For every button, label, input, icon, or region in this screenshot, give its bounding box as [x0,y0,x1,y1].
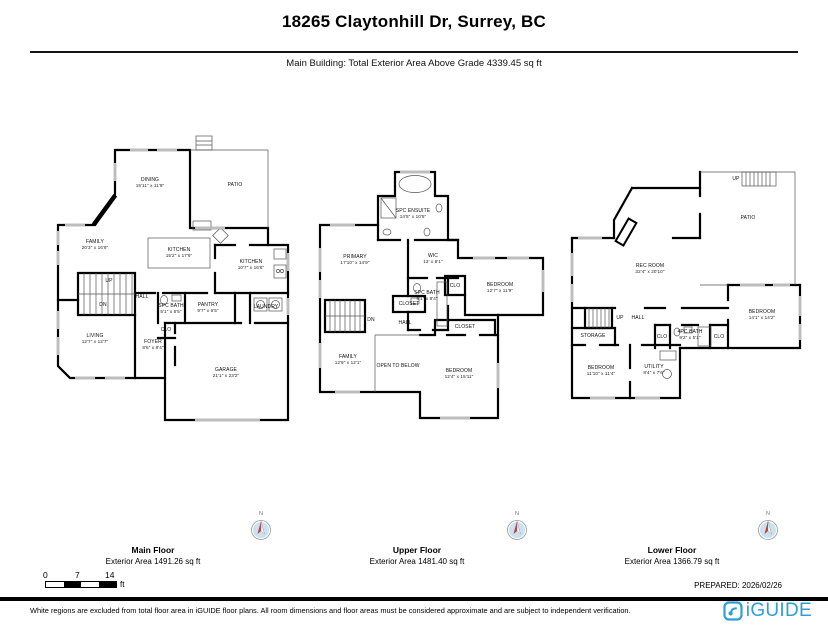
room-label-hall: HALL [136,294,149,300]
upper-floor-caption: Upper Floor Exterior Area 1481.40 sq ft [317,545,517,566]
page-title: 18265 Claytonhill Dr, Surrey, BC [0,12,828,32]
footer-disclaimer: White regions are excluded from total fl… [30,606,631,615]
lower-floor-walls [570,168,802,420]
room-label-up: UP [105,278,112,284]
room-label-closet: CLOSET [399,301,420,307]
iguide-logo: iGUIDE [723,600,812,622]
svg-text:N: N [515,511,519,517]
room-label-spc-ensuite: SPC ENSUITE14'5" x 10'5" [396,208,430,220]
compass-icon: N [249,507,273,545]
room-label-pantry: PANTRY9'7" x 6'5" [197,302,218,314]
room-label-foyer: FOYER8'6" x 8'4" [142,339,163,351]
room-label-laundry: LAUNDRY [254,304,279,310]
scale-tick-0: 0 [43,570,48,580]
header-divider [30,51,798,53]
room-label-bedroom: BEDROOM14'1" x 14'2" [749,309,776,321]
upper-floor-title: Upper Floor [317,545,517,555]
room-label-kitchen: KITCHEN15'2" x 17'6" [166,247,193,259]
page-subtitle: Main Building: Total Exterior Area Above… [0,58,828,69]
room-label-garage: GARAGE21'1" x 23'2" [213,367,240,379]
lower-floor-caption: Lower Floor Exterior Area 1366.79 sq ft [572,545,772,566]
floor-plan-page: 18265 Claytonhill Dr, Surrey, BC Main Bu… [0,0,828,640]
room-label-up: UP [616,315,623,321]
room-label-closet: CLOSET [455,324,476,330]
compass-icon: N [756,507,780,545]
room-label-bedroom: BEDROOM12'4" x 15'11" [445,368,474,380]
scale-bar: 0 7 14 ft [45,570,155,592]
room-label-open-to-below: OPEN TO BELOW [376,363,419,369]
room-label-kitchen: KITCHEN10'7" x 16'6" [238,259,265,271]
room-label-hall: HALL [632,315,645,321]
main-floor-walls [45,133,292,428]
room-label-4pc-bath: 4PC BATH9'2" x 5'1" [678,329,703,341]
svg-text:N: N [766,511,770,517]
main-floor-caption: Main Floor Exterior Area 1491.26 sq ft [53,545,253,566]
iguide-logo-text: iGUIDE [746,600,812,622]
room-label-patio: PATIO [741,215,756,221]
upper-floor-area: Exterior Area 1481.40 sq ft [317,557,517,566]
main-floor-plan: DINING15'11" x 11'9"PATIOFAMILY20'3" x 1… [45,133,292,428]
footer-divider [0,597,828,601]
compass-icon: N [505,507,529,545]
room-label-up: UP [732,176,739,182]
room-label-utility: UTILITY8'4" x 7'6" [643,364,664,376]
upper-floor-plan: SPC ENSUITE14'5" x 10'5"PRIMARY17'10" x … [315,168,545,420]
room-label-dn: DN [99,302,106,308]
room-label-patio: PATIO [228,182,243,188]
room-label-clo: CLO [657,334,668,340]
svg-text:N: N [259,511,263,517]
room-label-bedroom: BEDROOM11'10" x 11'4" [587,365,615,377]
room-label-storage: STORAGE [580,333,605,339]
room-label-family: FAMILY20'3" x 16'9" [82,239,109,251]
room-label-dining: DINING15'11" x 11'9" [136,177,164,189]
room-label-dn: DN [367,317,374,323]
lower-floor-title: Lower Floor [572,545,772,555]
room-label-family: FAMILY12'9" x 12'1" [335,354,362,366]
room-label-clo: CLO [161,327,172,333]
main-floor-title: Main Floor [53,545,253,555]
scale-tick-14: 14 [105,570,114,580]
lower-floor-plan: UPPATIOREC ROOM32'4" x 20'10"BEDROOM14'1… [570,168,802,420]
iguide-logo-icon [723,601,743,621]
room-label-wic: WIC13' x 9'1" [423,253,442,265]
scale-bar-strip [45,581,117,588]
room-label-clo: CLO [450,283,461,289]
room-label-bedroom: BEDROOM12'7" x 11'9" [487,282,514,294]
room-label-living: LIVING12'7" x 12'7" [82,333,109,345]
room-label-primary: PRIMARY17'10" x 14'9" [340,254,369,266]
lower-floor-area: Exterior Area 1366.79 sq ft [572,557,772,566]
scale-unit: ft [120,580,124,589]
main-floor-area: Exterior Area 1491.26 sq ft [53,557,253,566]
room-label-clo: CLO [714,334,725,340]
room-label-rec-room: REC ROOM32'4" x 20'10" [635,263,664,275]
prepared-date: PREPARED: 2026/02/26 [694,581,782,590]
scale-tick-7: 7 [75,570,80,580]
room-label-spc-bath: SPC BATH5'1" x 6'5" [158,303,183,315]
room-label-hall: HALL [399,320,412,326]
